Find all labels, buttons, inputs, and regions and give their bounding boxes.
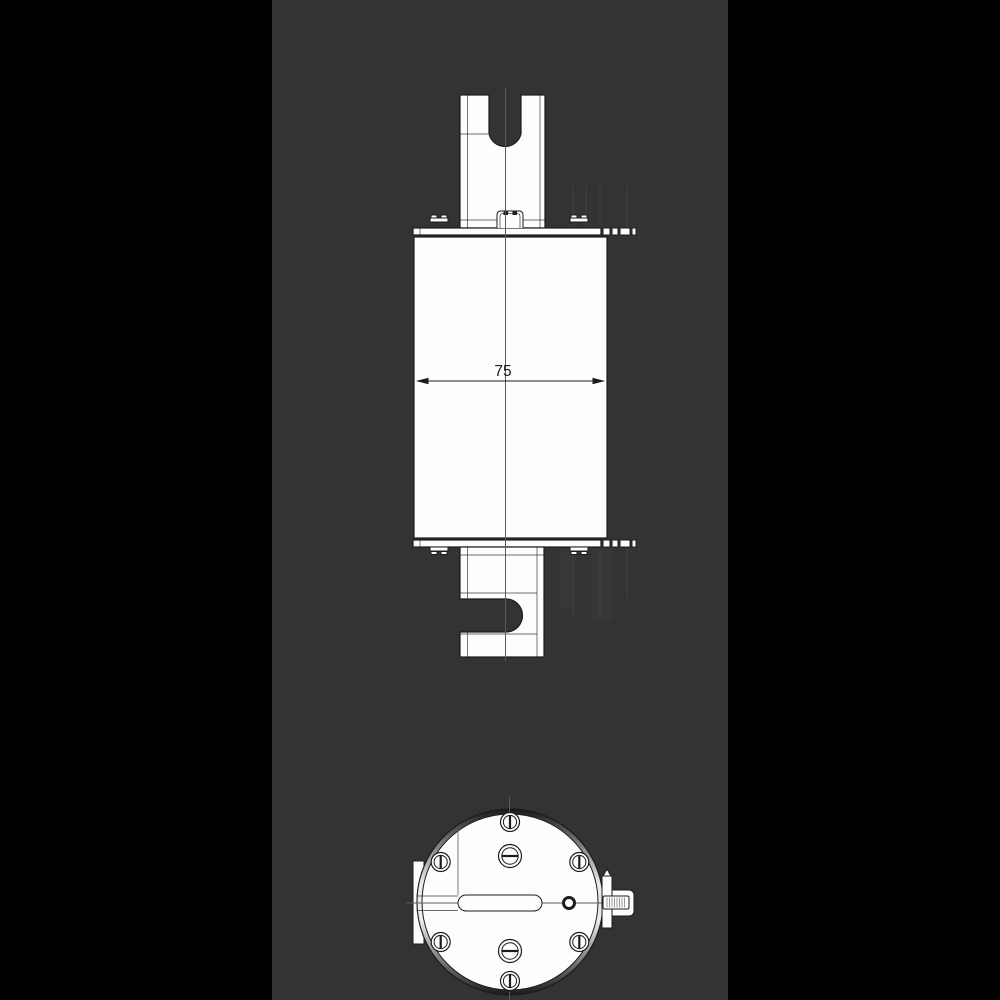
cap-screw-bottom	[501, 972, 520, 991]
striker-plate-tip	[603, 869, 611, 876]
bottom-blade	[459, 547, 544, 657]
fuse-body	[414, 237, 607, 538]
cap-screw-lower-right	[570, 933, 589, 952]
striker-pin-assembly	[602, 869, 634, 928]
cap-screw-top	[501, 813, 520, 832]
fuse-technical-drawing: 75	[0, 0, 1000, 1000]
dimension-label: 75	[494, 363, 511, 380]
plate-screw-left	[430, 215, 448, 222]
cap-screw-center-lower	[499, 940, 522, 963]
cap-screw-upper-right	[570, 853, 589, 872]
plate-screw-right-bottom	[570, 547, 588, 555]
front-view: 75	[413, 88, 636, 661]
indicator-bracket-top	[497, 211, 523, 228]
cap-blade-slot	[458, 895, 542, 911]
screenshot-canvas: 75	[0, 0, 1000, 1000]
cap-screw-upper-left	[431, 853, 450, 872]
plate-screw-left-bottom	[430, 547, 448, 555]
cap-screw-lower-left	[431, 933, 450, 952]
top-blade	[460, 94, 545, 228]
cap-screw-center-upper	[499, 845, 522, 868]
striker-pin	[603, 896, 629, 909]
plate-screw-right	[570, 215, 588, 222]
bottom-blade-slot	[459, 599, 523, 632]
indicator-hole	[564, 898, 575, 909]
bottom-view	[406, 797, 634, 1000]
